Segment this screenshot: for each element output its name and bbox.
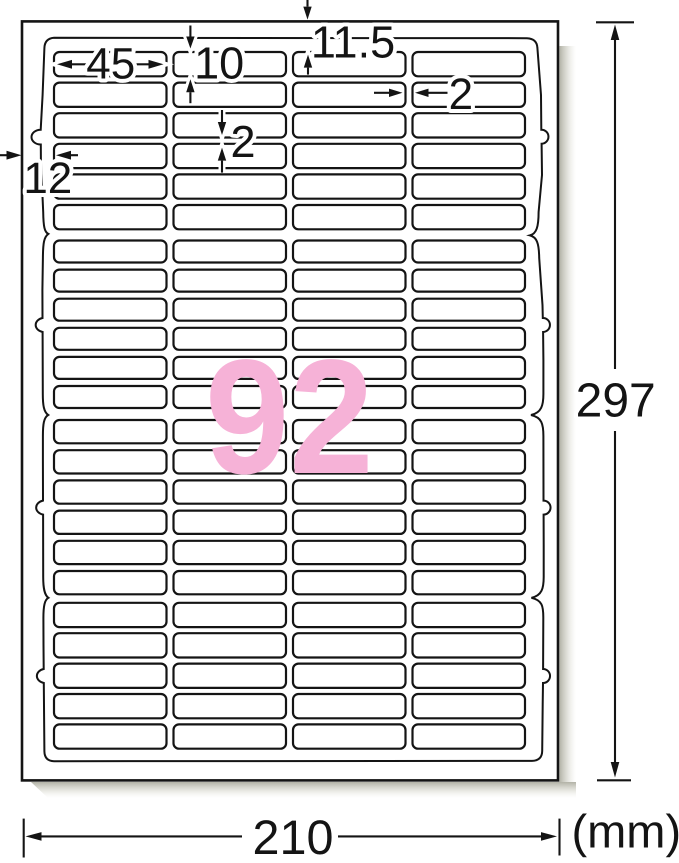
svg-text:2: 2 — [230, 116, 255, 167]
svg-text:(mm): (mm) — [572, 805, 679, 858]
svg-text:210: 210 — [253, 811, 334, 858]
svg-text:2: 2 — [449, 70, 473, 119]
svg-text:297: 297 — [576, 375, 656, 428]
svg-text:92: 92 — [205, 325, 374, 508]
svg-text:10: 10 — [194, 38, 244, 89]
svg-text:12: 12 — [23, 154, 72, 203]
svg-text:11.5: 11.5 — [311, 17, 395, 68]
svg-text:45: 45 — [86, 39, 135, 88]
